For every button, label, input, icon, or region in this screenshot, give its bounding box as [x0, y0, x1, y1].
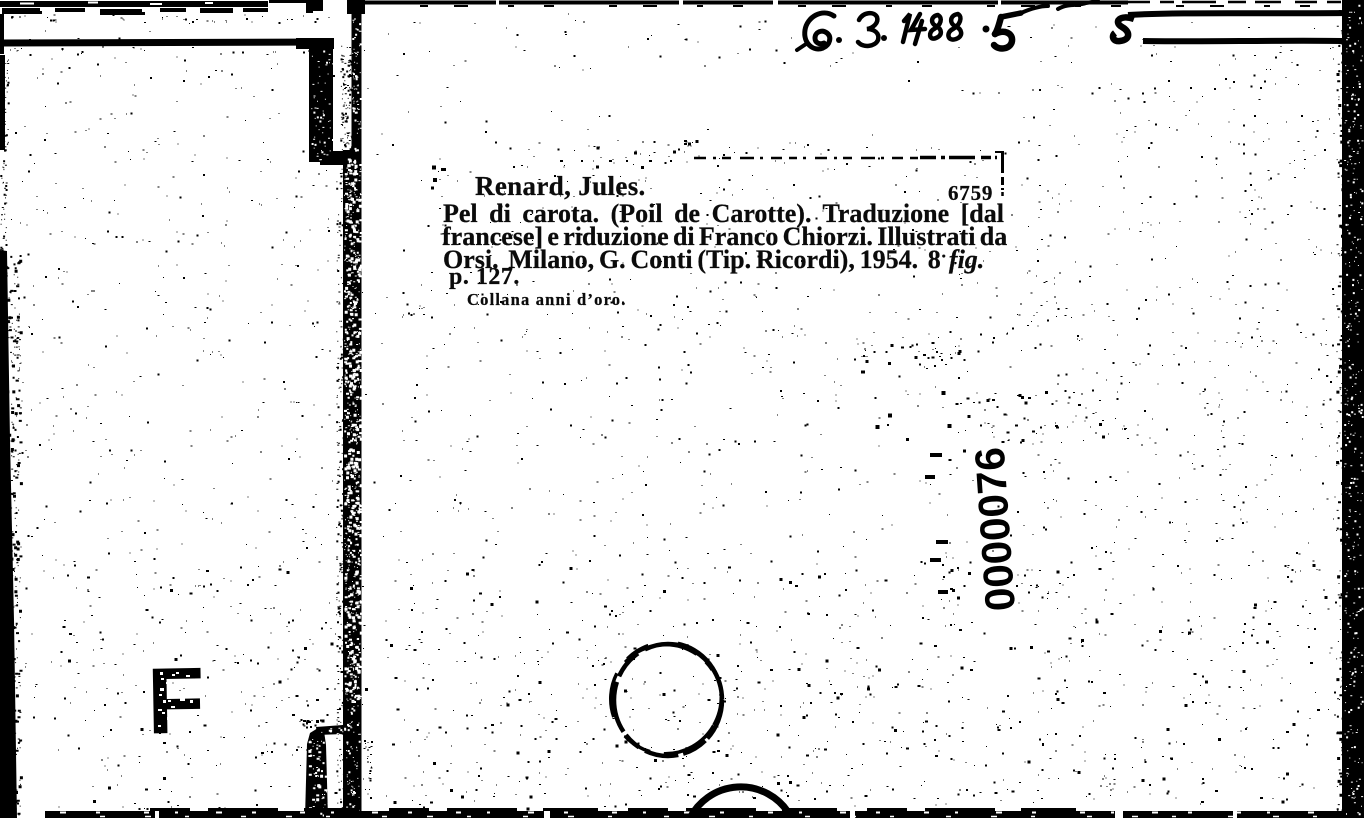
- svg-text:F: F: [146, 647, 205, 753]
- svg-text:0000076: 0000076: [966, 446, 1024, 613]
